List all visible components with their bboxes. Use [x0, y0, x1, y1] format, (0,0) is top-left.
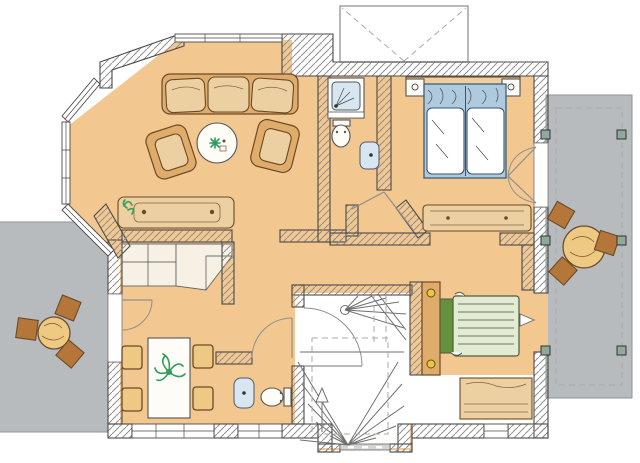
wall-right — [534, 207, 548, 293]
wall-bath-bedroom — [377, 76, 391, 190]
sideboard — [118, 197, 234, 228]
wall-bottom — [282, 424, 318, 438]
dining-table — [148, 338, 190, 418]
wardrobe-strip — [422, 282, 440, 375]
single-bed-green — [440, 292, 519, 356]
wc-basin — [234, 378, 254, 408]
bay-window-left — [62, 122, 70, 204]
dining-chair — [122, 388, 142, 411]
stairwell-right-wall — [410, 282, 422, 375]
wall-hall-bedroom2 — [330, 233, 430, 245]
porch-wall — [390, 444, 412, 452]
terrace-post — [617, 130, 626, 139]
wall-living-dining — [122, 230, 232, 242]
terrace-post — [541, 236, 550, 245]
wall-bottom — [108, 424, 132, 438]
wall-bottom — [508, 424, 548, 438]
wc-top-wall — [216, 352, 252, 364]
wall-left — [108, 362, 122, 424]
terrace-post — [617, 236, 626, 245]
roof-dormer — [340, 6, 468, 62]
shower — [328, 78, 364, 118]
floor-plan-page — [0, 0, 640, 463]
stairwell-left-wall — [292, 366, 304, 424]
terrace-post — [617, 346, 626, 355]
wc-window — [238, 424, 282, 438]
porch-wall — [318, 444, 340, 452]
wall-dining-hall — [222, 242, 234, 304]
floor-plan-drawing — [0, 0, 640, 463]
wall-bottom — [412, 424, 484, 438]
hall-wall-stub — [346, 205, 358, 236]
stairwell-top-wall — [292, 285, 412, 295]
left-terrace — [0, 222, 108, 432]
wall-bottom — [214, 424, 238, 438]
dresser-top-bedroom — [423, 205, 531, 231]
coffee-table — [197, 123, 237, 163]
wall-corner — [522, 245, 534, 290]
stairwell-left-wall — [292, 285, 304, 307]
nightstand-left — [406, 79, 424, 96]
bedroom-window — [484, 424, 508, 438]
sofa — [162, 74, 298, 114]
terrace-door-threshold — [534, 293, 548, 352]
wall-corner — [500, 233, 534, 245]
bay-window-top — [175, 34, 282, 42]
terrace-post — [541, 346, 550, 355]
dresser-bottom-bedroom — [460, 378, 532, 419]
dining-window — [132, 424, 214, 438]
basin-top — [360, 142, 379, 169]
left-terrace-chair — [16, 318, 39, 341]
dining-chair — [193, 345, 213, 368]
double-bed — [424, 84, 506, 178]
dormer-outline — [340, 6, 468, 62]
terrace-post — [541, 130, 550, 139]
dining-chair — [122, 346, 142, 369]
toilet-top — [332, 120, 350, 147]
wc-toilet — [261, 388, 291, 406]
dining-chair — [193, 387, 213, 410]
